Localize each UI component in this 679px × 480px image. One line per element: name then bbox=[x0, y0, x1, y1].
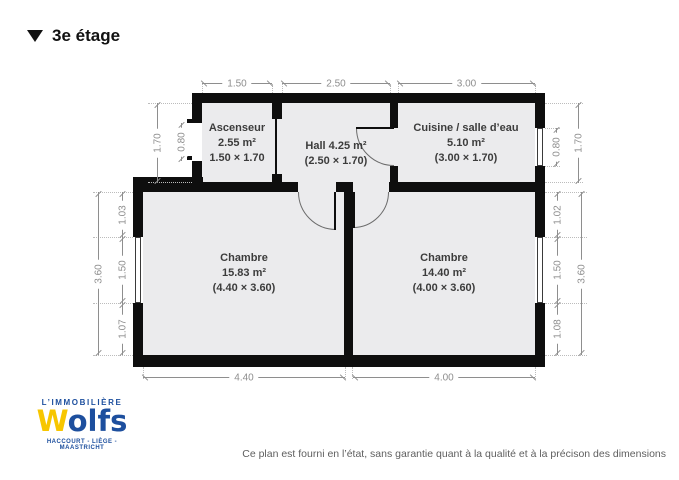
extension-line bbox=[148, 103, 192, 104]
room-name: Ascenseur bbox=[192, 121, 282, 136]
extension-line bbox=[398, 84, 399, 93]
extension-line bbox=[535, 367, 536, 379]
wall-segment bbox=[192, 93, 545, 103]
floor-selector[interactable]: 3e étage bbox=[27, 26, 120, 46]
wall-segment bbox=[192, 103, 202, 123]
wall-segment bbox=[535, 103, 545, 128]
dimension-upper-right-window: 0.80 bbox=[556, 128, 557, 166]
logo-letters-rest: olfs bbox=[68, 404, 128, 438]
dimension-upper-left-outer: 1.70 bbox=[157, 103, 158, 183]
chevron-down-icon bbox=[27, 30, 43, 42]
dimension-right-outer: 3.60 bbox=[581, 192, 582, 355]
extension-line bbox=[202, 84, 203, 93]
dimension-bottom-left: 4.40 bbox=[143, 377, 345, 378]
room-label-hall: Hall 4.25 m² (2.50 × 1.70) bbox=[276, 139, 396, 169]
dimension-upper-left-door: 0.80 bbox=[181, 123, 182, 161]
room-area: 2.55 m² bbox=[192, 136, 282, 151]
extension-line bbox=[345, 367, 346, 379]
wall-segment bbox=[272, 103, 282, 119]
wall-segment bbox=[133, 303, 143, 355]
door-opening bbox=[298, 182, 336, 192]
room-name: Chambre bbox=[384, 251, 504, 266]
room-size: (4.40 × 3.60) bbox=[184, 281, 304, 296]
dimension-value: 1.50 bbox=[222, 79, 251, 90]
dimension-value: 1.02 bbox=[553, 200, 564, 229]
room-name: Cuisine / salle d’eau bbox=[396, 121, 536, 136]
dimension-value: 1.08 bbox=[553, 314, 564, 343]
room-label-chambre-right: Chambre 14.40 m² (4.00 × 3.60) bbox=[384, 251, 504, 296]
dimension-top-cuisine: 3.00 bbox=[398, 83, 535, 84]
door-leaf bbox=[353, 192, 355, 228]
dimension-left-outer: 3.60 bbox=[98, 192, 99, 355]
wall-segment bbox=[535, 303, 545, 355]
dimension-value: 1.50 bbox=[118, 255, 129, 284]
extension-line bbox=[93, 237, 133, 238]
wall-segment bbox=[389, 182, 545, 192]
dimension-value: 2.50 bbox=[321, 79, 350, 90]
wall-segment bbox=[133, 182, 298, 192]
page-title: 3e étage bbox=[52, 26, 120, 46]
window-frame bbox=[537, 237, 543, 303]
dimension-top-hall: 2.50 bbox=[282, 83, 390, 84]
dimension-right-seg1: 1.02 bbox=[557, 192, 558, 237]
wall-segment bbox=[535, 166, 545, 237]
room-size: (4.00 × 3.60) bbox=[384, 281, 504, 296]
wall-segment bbox=[344, 182, 353, 367]
dimension-value: 0.80 bbox=[552, 132, 563, 161]
room-size: 1.50 × 1.70 bbox=[192, 151, 282, 166]
room-area: 15.83 m² bbox=[184, 266, 304, 281]
room-label-chambre-left: Chambre 15.83 m² (4.40 × 3.60) bbox=[184, 251, 304, 296]
room-area: 14.40 m² bbox=[384, 266, 504, 281]
room-label-cuisine: Cuisine / salle d’eau 5.10 m² (3.00 × 1.… bbox=[396, 121, 536, 166]
dimension-right-seg2: 1.50 bbox=[557, 237, 558, 303]
dimension-value: 1.07 bbox=[118, 314, 129, 343]
wall-segment bbox=[133, 182, 143, 237]
room-label-ascenseur: Ascenseur 2.55 m² 1.50 × 1.70 bbox=[192, 121, 282, 166]
disclaimer-text: Ce plan est fourni en l’état, sans garan… bbox=[242, 448, 666, 460]
door-arc-chambre-right bbox=[353, 192, 389, 228]
room-size: (2.50 × 1.70) bbox=[276, 154, 396, 169]
floorplan-page: 3e étage bbox=[0, 0, 679, 480]
door-arc-chambre-left bbox=[298, 192, 336, 230]
room-size: (3.00 × 1.70) bbox=[396, 151, 536, 166]
dimension-value: 3.00 bbox=[452, 79, 481, 90]
dimension-left-seg3: 1.07 bbox=[122, 303, 123, 355]
door-opening bbox=[353, 182, 389, 192]
extension-line bbox=[93, 303, 133, 304]
extension-line bbox=[545, 355, 587, 356]
room-area: 5.10 m² bbox=[396, 136, 536, 151]
dimension-left-seg1: 1.03 bbox=[122, 192, 123, 237]
logo-letter-w: W bbox=[37, 404, 68, 438]
dimension-value: 4.00 bbox=[429, 373, 458, 384]
door-leaf bbox=[356, 127, 394, 129]
dimension-top-ascenseur: 1.50 bbox=[202, 83, 272, 84]
dimension-right-seg3: 1.08 bbox=[557, 303, 558, 355]
door-leaf bbox=[334, 192, 336, 230]
dimension-value: 1.70 bbox=[574, 128, 585, 157]
dimension-value: 3.60 bbox=[94, 259, 105, 288]
window-frame bbox=[135, 237, 141, 303]
logo-cities: HACCOURT - LIÈGE - MAASTRICHT bbox=[24, 439, 140, 451]
window-frame bbox=[537, 128, 543, 166]
extension-line bbox=[93, 355, 133, 356]
dimension-left-seg2: 1.50 bbox=[122, 237, 123, 303]
wall-segment bbox=[133, 355, 545, 367]
room-name: Hall 4.25 m² bbox=[276, 139, 396, 154]
dimension-value: 1.50 bbox=[553, 255, 564, 284]
dimension-value: 1.03 bbox=[118, 200, 129, 229]
room-name: Chambre bbox=[184, 251, 304, 266]
wall-segment bbox=[272, 174, 282, 182]
extension-line bbox=[282, 84, 283, 93]
dimension-value: 0.80 bbox=[177, 127, 188, 156]
dimension-value: 1.70 bbox=[153, 128, 164, 157]
dimension-value: 4.40 bbox=[229, 373, 258, 384]
agency-logo: L’IMMOBILIÈRE Wolfs HACCOURT - LIÈGE - M… bbox=[24, 398, 140, 451]
dimension-upper-right-outer: 1.70 bbox=[578, 103, 579, 183]
dimension-value: 3.60 bbox=[577, 259, 588, 288]
dimension-bottom-right: 4.00 bbox=[353, 377, 535, 378]
logo-wordmark: Wolfs bbox=[24, 407, 140, 437]
